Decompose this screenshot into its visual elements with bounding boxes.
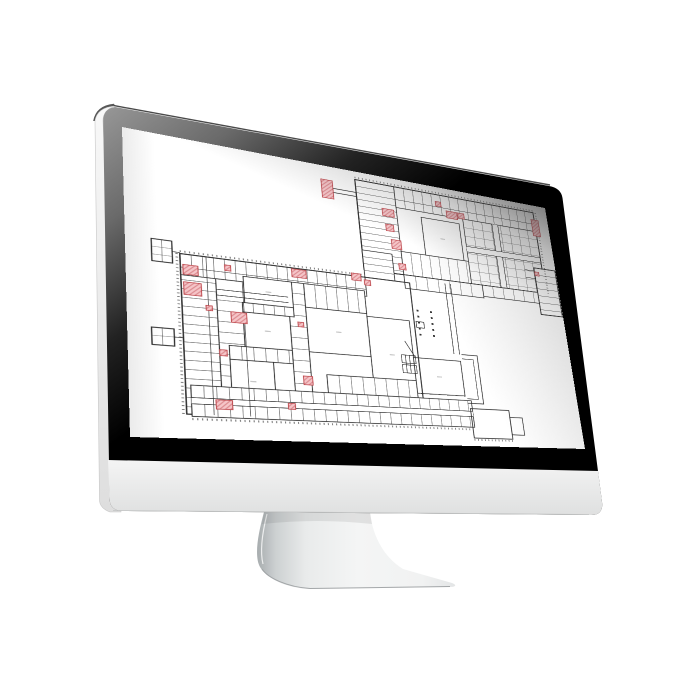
highlighted-room <box>458 213 465 219</box>
plan-detail <box>333 188 357 196</box>
highlighted-room <box>291 269 306 279</box>
highlighted-room <box>220 350 228 357</box>
highlighted-room <box>303 376 313 385</box>
stand-foot <box>257 512 455 589</box>
mockup-stage <box>0 0 700 700</box>
building-outline <box>470 409 512 440</box>
building-outline <box>510 417 525 435</box>
column-dot <box>417 316 419 318</box>
highlighted-room <box>321 179 334 199</box>
highlighted-room <box>364 280 371 286</box>
column-dot <box>431 317 433 319</box>
highlighted-room <box>535 272 540 276</box>
highlighted-room <box>288 403 295 409</box>
highlighted-room <box>184 282 202 297</box>
highlighted-room <box>206 305 212 310</box>
window-ticks <box>475 440 514 441</box>
highlighted-room <box>399 263 406 270</box>
monitor-stand <box>257 512 455 589</box>
plan-detail <box>174 337 183 338</box>
highlighted-room <box>386 224 394 232</box>
highlighted-room <box>391 239 402 250</box>
column-dot <box>418 322 420 324</box>
highlighted-room <box>183 264 199 275</box>
highlighted-room <box>231 312 247 324</box>
plan-detail <box>461 355 483 404</box>
plan-detail <box>172 252 180 253</box>
column-dot <box>419 328 421 330</box>
column-dot <box>433 335 435 337</box>
highlighted-room <box>298 322 304 327</box>
column-dot <box>417 310 419 312</box>
highlighted-room <box>435 201 441 207</box>
column-dot <box>419 334 421 336</box>
highlighted-room <box>225 265 231 271</box>
column-dot <box>432 329 434 331</box>
column-dot <box>430 311 432 313</box>
highlighted-room <box>351 273 361 281</box>
building-outline <box>416 321 424 328</box>
column-dot <box>431 323 433 325</box>
highlighted-room <box>216 400 233 410</box>
